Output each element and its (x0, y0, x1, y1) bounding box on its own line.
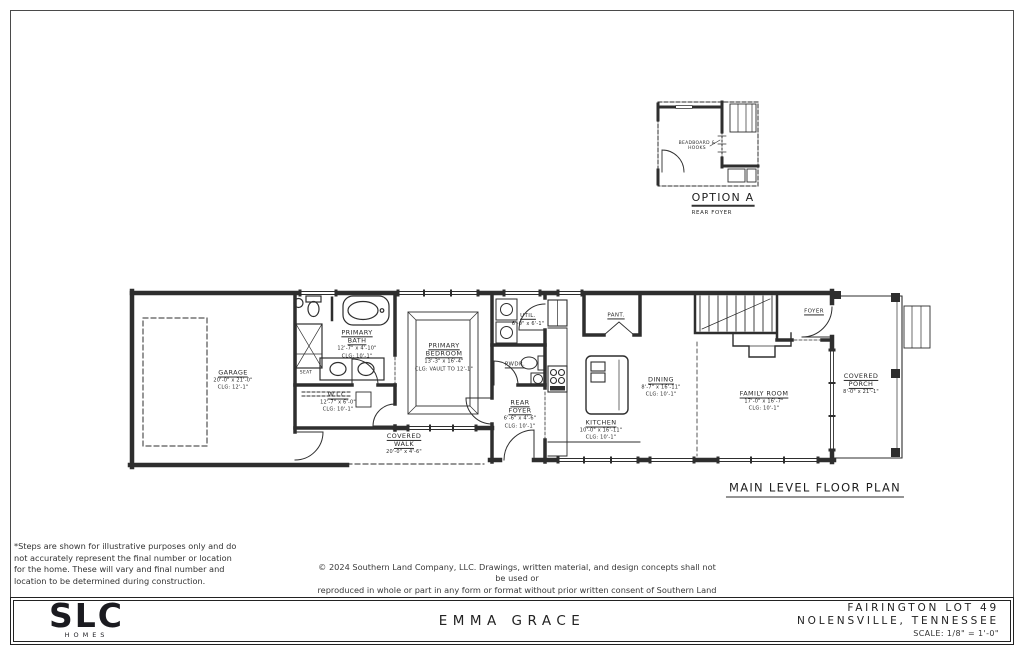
room-label-rear-foyer: REAR FOYER 6'-6" x 4'-6" CLG: 10'-1" (498, 398, 542, 429)
room-label-foyer: FOYER (804, 308, 824, 315)
room-label-family-room: FAMILY ROOM 17'-0" x 16'-7" CLG: 10'-1" (740, 390, 789, 413)
room-label-kitchen: KITCHEN 10'-0" x 16'-11" CLG: 10'-1" (580, 419, 623, 442)
option-a-caption: OPTION A REAR FOYER (692, 191, 755, 216)
project-lot: FAIRINGTON LOT 49 (797, 602, 999, 615)
drawing-sheet: GARAGE 20'-0" x 21'-0" CLG: 12'-1" PRIMA… (0, 0, 1024, 650)
option-a-title: OPTION A (692, 191, 755, 207)
room-label-dining: DINING 8'-7" x 16'-11" CLG: 10'-1" (641, 376, 680, 399)
fireplace (733, 333, 791, 357)
project-info: FAIRINGTON LOT 49 NOLENSVILLE, TENNESSEE… (797, 602, 999, 638)
project-city: NOLENSVILLE, TENNESSEE (797, 615, 999, 628)
disclaimer-line: location to be determined during constru… (14, 576, 254, 588)
room-label-seat: SEAT (300, 371, 312, 376)
plan-name: EMMA GRACE (439, 613, 586, 629)
plan-title: MAIN LEVEL FLOOR PLAN (726, 481, 904, 498)
room-label-pant: PANT. (607, 312, 624, 319)
drawing-scale: SCALE: 1/8" = 1'-0" (797, 629, 999, 638)
option-a-note: BEADBOARD & HOOKS (676, 141, 718, 151)
disclaimer-note: *Steps are shown for illustrative purpos… (14, 541, 254, 588)
room-label-primary-bedroom: PRIMARY BEDROOM 13'-3" x 16'-4" CLG: VAU… (413, 341, 475, 372)
room-label-pwdr: PWDR. (505, 361, 525, 368)
room-label-covered-porch: COVERED PORCH 8'-0" x 21'-1" (834, 372, 888, 396)
disclaimer-line: not accurately represent the final numbe… (14, 553, 254, 565)
copyright-line: © 2024 Southern Land Company, LLC. Drawi… (312, 562, 722, 585)
title-block: SLC HOMES EMMA GRACE FAIRINGTON LOT 49 N… (10, 597, 1014, 645)
room-label-util: UTIL. 6'-0" x 6'-1" (510, 313, 546, 327)
slc-homes-logo: SLC HOMES (49, 599, 124, 639)
option-a-subtitle: REAR FOYER (692, 209, 755, 215)
disclaimer-line: for the home. These will vary and final … (14, 564, 254, 576)
dashed-outlines (143, 318, 484, 464)
powder-fixtures (521, 356, 545, 385)
room-label-primary-bath: PRIMARY BATH 12'-7" x 4'-10" CLG: 10'-1" (332, 328, 382, 359)
logo-text: SLC (49, 599, 124, 632)
room-label-wic: W.I.C. 12'-7" x 6'-0" CLG: 10'-1" (320, 391, 356, 414)
room-label-garage: GARAGE 20'-0" x 21'-0" CLG: 12'-1" (213, 369, 252, 392)
disclaimer-line: *Steps are shown for illustrative purpos… (14, 541, 254, 553)
stairs (700, 296, 772, 331)
room-label-covered-walk: COVERED WALK 20'-0" x 4'-6" (376, 432, 432, 456)
